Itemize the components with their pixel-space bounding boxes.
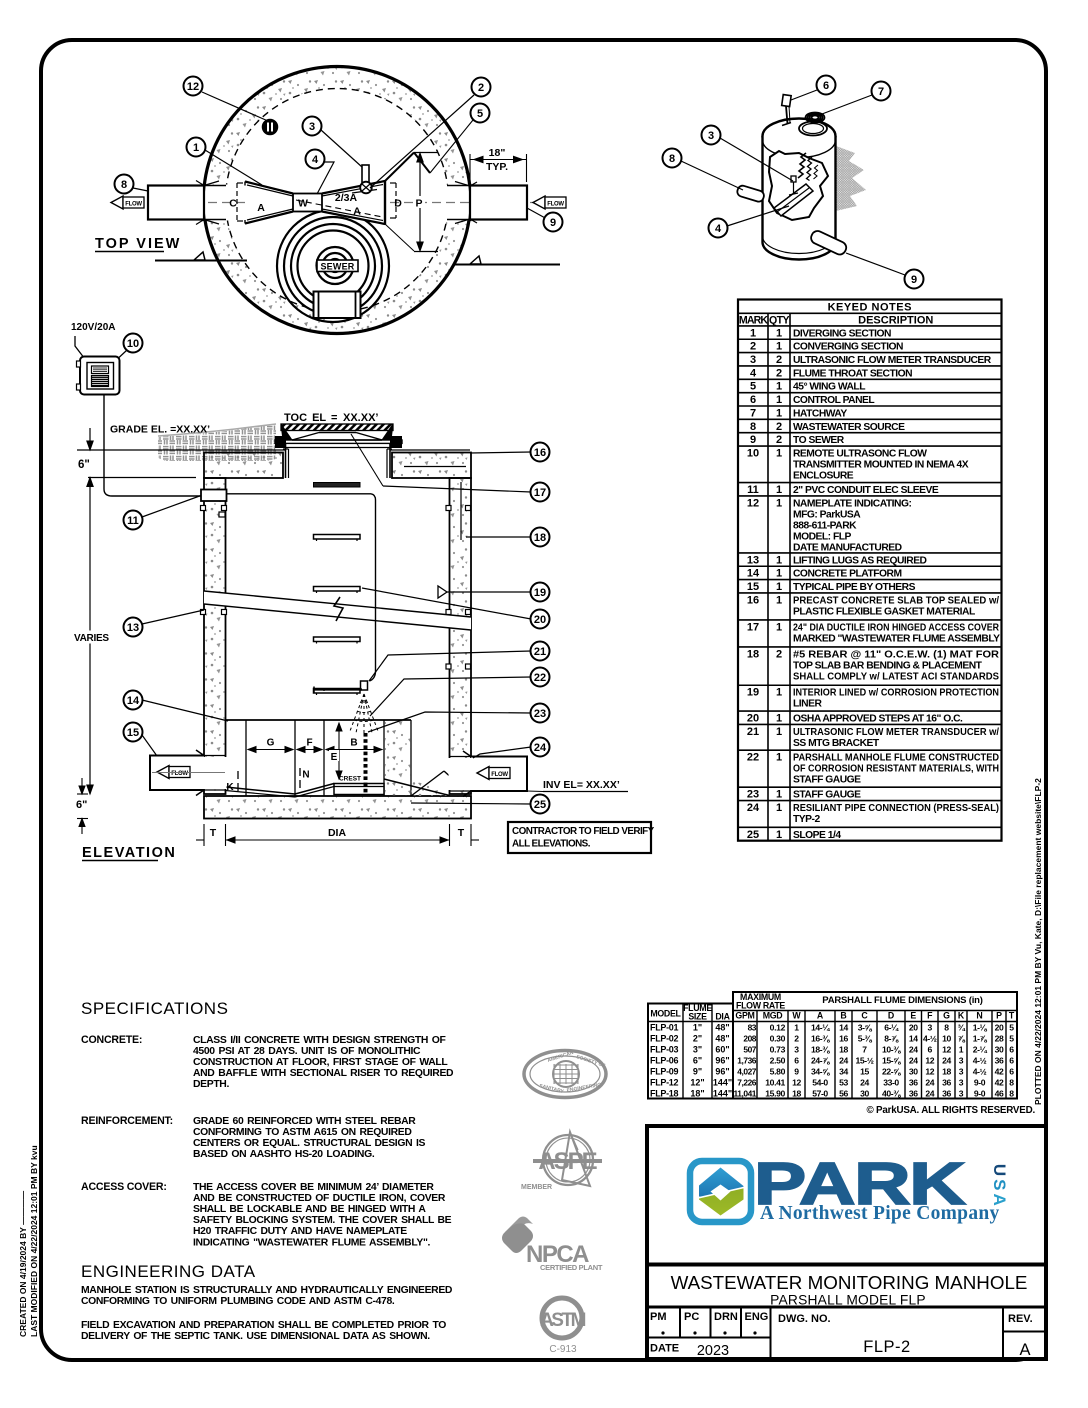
svg-text:6: 6: [794, 1056, 799, 1066]
svg-text:6: 6: [823, 80, 829, 92]
svg-text:2: 2: [794, 1034, 799, 1044]
svg-text:8: 8: [121, 179, 127, 191]
svg-text:14: 14: [747, 568, 760, 580]
svg-text:INDICATING "WASTEWATER FLUME A: INDICATING "WASTEWATER FLUME ASSEMBLY".: [193, 1237, 431, 1248]
svg-text:3: 3: [750, 354, 756, 366]
svg-text:3: 3: [959, 1078, 964, 1088]
svg-text:57-0: 57-0: [812, 1089, 828, 1099]
svg-text:CONCRETE:: CONCRETE:: [81, 1034, 142, 1046]
svg-text:14: 14: [909, 1034, 918, 1044]
svg-text:7: 7: [878, 86, 884, 98]
svg-text:ELEVATION: ELEVATION: [82, 845, 176, 861]
svg-text:1: 1: [776, 341, 782, 353]
svg-text:TOP VIEW: TOP VIEW: [95, 236, 181, 252]
svg-text:LAST MODIFIED ON 4/22/2024 12:: LAST MODIFIED ON 4/22/2024 12:01 PM BY k…: [29, 1145, 39, 1337]
svg-text:ULTRASONIC FLOW METER TRANSDUC: ULTRASONIC FLOW METER TRANSDUCER: [793, 355, 992, 366]
svg-text:CONFORMING TO ASTM A615 ON REQ: CONFORMING TO ASTM A615 ON REQUIRED: [193, 1127, 412, 1138]
svg-text:FIELD EXCAVATION AND PREPARATI: FIELD EXCAVATION AND PREPARATION SHALL B…: [81, 1320, 446, 1331]
svg-text:KEYED NOTES: KEYED NOTES: [828, 302, 912, 314]
svg-text:8: 8: [750, 421, 756, 433]
svg-text:1: 1: [776, 381, 782, 393]
svg-text:GPM: GPM: [735, 1011, 754, 1021]
svg-text:FLUME THROAT SECTION: FLUME THROAT SECTION: [793, 368, 912, 379]
svg-text:18: 18: [534, 532, 546, 544]
svg-text:DATE MANUFACTURED: DATE MANUFACTURED: [793, 542, 902, 553]
svg-text:1: 1: [776, 484, 782, 496]
svg-text:13: 13: [127, 622, 139, 634]
svg-text:FLP-09: FLP-09: [650, 1067, 679, 1077]
svg-text:FLOW: FLOW: [491, 772, 508, 778]
svg-text:42: 42: [995, 1078, 1004, 1088]
svg-text:3: 3: [309, 121, 315, 133]
svg-text:19: 19: [747, 687, 759, 699]
svg-text:30: 30: [860, 1089, 869, 1099]
svg-text:#5 REBAR @ 11" O.C.E.W. (1) MA: #5 REBAR @ 11" O.C.E.W. (1) MAT FOR: [793, 649, 1000, 660]
svg-text:14: 14: [127, 695, 140, 707]
svg-text:24: 24: [909, 1056, 918, 1066]
svg-text:A: A: [1019, 1341, 1030, 1359]
svg-text:24" DIA DUCTILE IRON HINGED AC: 24" DIA DUCTILE IRON HINGED ACCESS COVER: [793, 622, 999, 633]
svg-text:2: 2: [776, 434, 782, 446]
svg-text:CENTERS OR EQUAL. STRUCTURAL D: CENTERS OR EQUAL. STRUCTURAL DESIGN IS: [193, 1138, 426, 1149]
svg-text:SAFETY BLOCKING SYSTEM. THE CO: SAFETY BLOCKING SYSTEM. THE COVER SHALL …: [193, 1215, 452, 1226]
svg-text:507: 507: [743, 1045, 756, 1055]
svg-text:CONCRETE PLATFORM: CONCRETE PLATFORM: [793, 569, 902, 580]
svg-text:CREST: CREST: [339, 776, 361, 783]
svg-text:12: 12: [747, 497, 759, 509]
svg-text:PM: PM: [650, 1311, 667, 1323]
svg-text:40-⅜: 40-⅜: [882, 1089, 901, 1099]
svg-text:OF CORROSION RESISTANT MATERIA: OF CORROSION RESISTANT MATERIALS, WITH: [793, 764, 999, 775]
svg-text:12: 12: [187, 81, 199, 93]
svg-text:1: 1: [776, 581, 782, 593]
svg-text:5: 5: [477, 108, 483, 120]
svg-text:GRADE EL. =XX.XX’: GRADE EL. =XX.XX’: [110, 424, 210, 436]
svg-text:HATCHWAY: HATCHWAY: [793, 408, 847, 419]
svg-text:LIFTING LUGS AS REQUIRED: LIFTING LUGS AS REQUIRED: [793, 555, 927, 566]
svg-text:16: 16: [747, 594, 759, 606]
svg-text:1: 1: [776, 829, 782, 841]
svg-text:120V/20A: 120V/20A: [71, 322, 115, 333]
svg-text:SHALL BE LOCKABLE AND BE HINGE: SHALL BE LOCKABLE AND BE HINGED WITH A: [193, 1204, 426, 1215]
svg-text:FLOW: FLOW: [125, 202, 142, 208]
svg-text:CONTROL PANEL: CONTROL PANEL: [793, 395, 874, 406]
svg-text:SPECIFICATIONS: SPECIFICATIONS: [81, 999, 228, 1018]
svg-text:25: 25: [534, 799, 546, 811]
svg-text:WASTEWATER MONITORING MANHOL: WASTEWATER MONITORING MANHOLE: [671, 1272, 1028, 1293]
svg-text:MFG: ParkUSA: MFG: ParkUSA: [793, 509, 861, 520]
svg-text:DWG. NO.: DWG. NO.: [778, 1313, 831, 1325]
svg-text:E: E: [331, 752, 338, 763]
svg-text:34: 34: [839, 1067, 848, 1077]
svg-text:ACCESS COVER:: ACCESS COVER:: [81, 1181, 167, 1193]
svg-text:16: 16: [534, 447, 546, 459]
svg-text:45° WING WALL: 45° WING WALL: [793, 382, 865, 393]
svg-text:5: 5: [750, 381, 756, 393]
svg-text:1: 1: [776, 447, 782, 459]
svg-text:A Northwest Pipe Company: A Northwest Pipe Company: [760, 1203, 1000, 1224]
svg-text:17: 17: [534, 487, 546, 499]
svg-text:9: 9: [750, 434, 756, 446]
svg-text:PRECAST CONCRETE SLAB TOP SEAL: PRECAST CONCRETE SLAB TOP SEALED w/: [793, 595, 999, 606]
svg-text:6-¼: 6-¼: [884, 1023, 899, 1033]
svg-text:1: 1: [776, 789, 782, 801]
svg-text:MARK: MARK: [739, 315, 768, 327]
svg-text:3: 3: [794, 1045, 799, 1055]
svg-text:11: 11: [747, 484, 759, 496]
svg-text:LINER: LINER: [793, 699, 822, 710]
svg-text:2023: 2023: [697, 1343, 729, 1359]
svg-text:7,226: 7,226: [737, 1078, 757, 1088]
svg-text:TOP SLAB BAR BENDING & PLACEME: TOP SLAB BAR BENDING & PLACEMENT: [793, 660, 983, 671]
svg-text:14: 14: [839, 1023, 848, 1033]
svg-text:H20 TRAFFIC DUTY AND HAVE NAME: H20 TRAFFIC DUTY AND HAVE NAMEPLATE: [193, 1226, 407, 1237]
svg-text:SIZE: SIZE: [688, 1012, 707, 1022]
svg-text:19: 19: [534, 587, 546, 599]
svg-text:DIVERGING SECTION: DIVERGING SECTION: [793, 328, 891, 339]
svg-text:B: B: [840, 1011, 846, 1021]
svg-text:9-0: 9-0: [974, 1089, 986, 1099]
svg-text:3": 3": [693, 1045, 702, 1055]
svg-text:24: 24: [942, 1056, 951, 1066]
svg-text:14-¼: 14-¼: [811, 1023, 830, 1033]
svg-text:CONTRACTOR TO FIELD VERIFY: CONTRACTOR TO FIELD VERIFY: [512, 826, 655, 837]
svg-text:2" PVC CONDUIT ELEC SLEEVE: 2" PVC CONDUIT ELEC SLEEVE: [793, 485, 939, 496]
svg-text:18": 18": [690, 1089, 704, 1099]
svg-text:53: 53: [839, 1078, 848, 1088]
svg-text:1: 1: [776, 802, 782, 814]
svg-text:1: 1: [776, 726, 782, 738]
svg-text:1-⅛: 1-⅛: [973, 1023, 988, 1033]
svg-text:3: 3: [928, 1023, 933, 1033]
svg-text:24-⅞: 24-⅞: [811, 1056, 830, 1066]
svg-text:12: 12: [942, 1045, 951, 1055]
svg-text:144": 144": [713, 1089, 732, 1099]
svg-text:0.12: 0.12: [770, 1023, 786, 1033]
svg-text:83: 83: [748, 1023, 757, 1033]
svg-text:2-¼: 2-¼: [973, 1045, 988, 1055]
svg-text:FLP-06: FLP-06: [650, 1056, 679, 1066]
svg-text:20: 20: [534, 614, 546, 626]
svg-text:SHALL COMPLY w/ LATEST ACI STA: SHALL COMPLY w/ LATEST ACI STANDARDS: [793, 671, 999, 682]
svg-text:144": 144": [713, 1078, 732, 1088]
svg-text:23: 23: [747, 789, 759, 801]
svg-text:15.90: 15.90: [765, 1089, 785, 1099]
svg-text:1: 1: [776, 394, 782, 406]
svg-text:3: 3: [959, 1056, 964, 1066]
svg-text:A: A: [257, 202, 265, 214]
svg-text:1": 1": [693, 1023, 702, 1033]
svg-text:FLP-18: FLP-18: [650, 1089, 679, 1099]
svg-text:DEPTH.: DEPTH.: [193, 1079, 229, 1090]
svg-text:15-⅝: 15-⅝: [882, 1056, 901, 1066]
svg-text:96": 96": [715, 1067, 729, 1077]
svg-text:C: C: [861, 1011, 868, 1021]
svg-text:C-913: C-913: [549, 1344, 577, 1355]
svg-text:1: 1: [776, 327, 782, 339]
svg-text:STAFF GAUGE: STAFF GAUGE: [793, 775, 861, 786]
svg-text:1: 1: [776, 752, 782, 764]
svg-text:11,041: 11,041: [734, 1089, 757, 1099]
svg-text:4,027: 4,027: [737, 1067, 757, 1077]
svg-text:FLP-03: FLP-03: [650, 1045, 679, 1055]
svg-text:15: 15: [127, 727, 139, 739]
svg-text:24: 24: [860, 1078, 869, 1088]
svg-text:1: 1: [776, 594, 782, 606]
svg-text:2: 2: [750, 341, 756, 353]
svg-text:FLP-02: FLP-02: [650, 1034, 679, 1044]
svg-text:ALL ELEVATIONS.: ALL ELEVATIONS.: [512, 839, 591, 850]
svg-text:4: 4: [750, 367, 757, 379]
svg-text:DRN: DRN: [714, 1311, 738, 1323]
svg-text:F: F: [927, 1011, 933, 1021]
svg-text:1: 1: [959, 1045, 964, 1055]
svg-text:22-⅝: 22-⅝: [882, 1067, 901, 1077]
svg-text:PLASTIC FLEXIBLE GASKET MATERI: PLASTIC FLEXIBLE GASKET MATERIAL: [793, 606, 975, 617]
svg-text:6: 6: [1009, 1056, 1014, 1066]
svg-text:DATE: DATE: [650, 1343, 679, 1355]
svg-text:1: 1: [776, 407, 782, 419]
svg-text:9": 9": [693, 1067, 702, 1077]
svg-text:5-⅜: 5-⅜: [858, 1034, 873, 1044]
svg-text:15-½: 15-½: [856, 1056, 874, 1066]
svg-text:3: 3: [959, 1089, 964, 1099]
svg-text:4-½: 4-½: [973, 1067, 987, 1077]
svg-text:TYP.: TYP.: [486, 161, 508, 173]
svg-text:INV EL= XX.XX’: INV EL= XX.XX’: [543, 779, 620, 791]
svg-text:36: 36: [909, 1078, 918, 1088]
svg-text:CONFORMING TO UNIFORM PLUMBING: CONFORMING TO UNIFORM PLUMBING CODE AND …: [81, 1296, 395, 1307]
svg-text:23: 23: [534, 708, 546, 720]
svg-text:2.50: 2.50: [770, 1056, 786, 1066]
svg-text:DESCRIPTION: DESCRIPTION: [858, 315, 933, 327]
svg-text:208: 208: [743, 1034, 756, 1044]
svg-text:24: 24: [747, 802, 760, 814]
svg-text:ULTRASONIC FLOW METER TRANSDUC: ULTRASONIC FLOW METER TRANSDUCER w/: [793, 727, 999, 738]
svg-text:FLOW: FLOW: [547, 202, 564, 208]
svg-text:4: 4: [715, 223, 722, 235]
svg-text:48": 48": [715, 1023, 729, 1033]
svg-text:5: 5: [1009, 1034, 1014, 1044]
svg-text:AND BAFFLE WITH SECTIONAL RISE: AND BAFFLE WITH SECTIONAL RISER TO REQUI…: [193, 1068, 454, 1079]
svg-text:TRANSMITTER MOUNTED IN NEMA 4X: TRANSMITTER MOUNTED IN NEMA 4X: [793, 459, 969, 470]
svg-text:MARKED "WASTEWATER FLUME ASSEM: MARKED "WASTEWATER FLUME ASSEMBLY: [793, 633, 1000, 644]
svg-text:WASTEWATER SOURCE: WASTEWATER SOURCE: [793, 422, 905, 433]
svg-text:16-⅜: 16-⅜: [811, 1034, 830, 1044]
svg-text:18: 18: [747, 648, 759, 660]
svg-text:20: 20: [747, 712, 759, 724]
svg-text:E: E: [910, 1011, 916, 1021]
svg-text:MODEL: MODEL: [650, 1009, 681, 1019]
svg-text:11: 11: [127, 515, 139, 527]
svg-text:CREATED ON 4/19/2024 BY ————: CREATED ON 4/19/2024 BY ————: [18, 1190, 28, 1337]
svg-text:1: 1: [794, 1023, 799, 1033]
svg-text:1: 1: [776, 568, 782, 580]
svg-text:48": 48": [715, 1034, 729, 1044]
svg-text:U: U: [990, 1164, 1009, 1176]
svg-text:42: 42: [995, 1067, 1004, 1077]
svg-text:XX.XX’: XX.XX’: [343, 412, 378, 424]
svg-text:A: A: [353, 206, 361, 218]
svg-text:8: 8: [944, 1023, 949, 1033]
svg-text:VARIES: VARIES: [74, 633, 109, 644]
svg-text:9-0: 9-0: [974, 1078, 986, 1088]
svg-text:INTERIOR LINED w/ CORROSION PR: INTERIOR LINED w/ CORROSION PROTECTION: [793, 688, 999, 699]
svg-text:DIA: DIA: [328, 827, 347, 839]
svg-text:1: 1: [776, 497, 782, 509]
svg-text:2/3A: 2/3A: [335, 192, 358, 204]
svg-text:15: 15: [747, 581, 759, 593]
svg-text:ENCLOSURE: ENCLOSURE: [793, 470, 854, 481]
svg-text:MODEL: FLP: MODEL: FLP: [793, 531, 852, 542]
svg-text:FLP-12: FLP-12: [650, 1078, 679, 1088]
svg-text:24: 24: [534, 742, 547, 754]
svg-text:© ParkUSA. ALL RIGHTS RESER: © ParkUSA. ALL RIGHTS RESERVED.: [866, 1105, 1035, 1116]
svg-text:2: 2: [478, 82, 484, 94]
svg-text:36: 36: [942, 1089, 951, 1099]
svg-text:D: D: [888, 1011, 894, 1021]
svg-text:F: F: [306, 738, 312, 749]
svg-text:0.73: 0.73: [770, 1045, 786, 1055]
svg-text:7: 7: [862, 1045, 867, 1055]
svg-text:SEWER: SEWER: [320, 261, 354, 271]
svg-text:FLP-01: FLP-01: [650, 1023, 679, 1033]
svg-text:W: W: [792, 1011, 801, 1021]
svg-text:P: P: [415, 198, 422, 210]
svg-text:15: 15: [860, 1067, 869, 1077]
svg-text:4500 PSI AT 28 DAYS. UNIT IS O: 4500 PSI AT 28 DAYS. UNIT IS OF MONOLITH…: [193, 1046, 421, 1057]
svg-text:B: B: [350, 738, 357, 749]
svg-text:D: D: [394, 198, 402, 210]
svg-text:18: 18: [839, 1045, 848, 1055]
svg-text:9: 9: [550, 217, 556, 229]
svg-text:REV.: REV.: [1008, 1313, 1033, 1325]
svg-text:12": 12": [690, 1078, 704, 1088]
svg-text:33-0: 33-0: [883, 1078, 899, 1088]
svg-text:54-0: 54-0: [812, 1078, 828, 1088]
svg-text:ENGINEERING DATA: ENGINEERING DATA: [81, 1262, 256, 1281]
svg-text:DIA: DIA: [715, 1012, 730, 1022]
svg-text:6: 6: [1009, 1067, 1014, 1077]
svg-text:ENG: ENG: [745, 1311, 769, 1323]
svg-text:36: 36: [942, 1078, 951, 1088]
svg-text:9: 9: [911, 274, 917, 286]
svg-text:GRADE 60 REINFORCED WITH STEEL: GRADE 60 REINFORCED WITH STEEL REBAR: [193, 1116, 416, 1127]
svg-text:20: 20: [909, 1023, 918, 1033]
svg-text:PARSHALL MANHOLE FLUME CONSTRU: PARSHALL MANHOLE FLUME CONSTRUCTED: [793, 753, 999, 764]
svg-text:2: 2: [776, 648, 782, 660]
svg-text:24: 24: [839, 1056, 848, 1066]
svg-text:BASED ON AASHTO HS-20 LOADING.: BASED ON AASHTO HS-20 LOADING.: [193, 1149, 375, 1160]
svg-text:18: 18: [792, 1089, 801, 1099]
svg-text:4-½: 4-½: [973, 1056, 987, 1066]
svg-text:4: 4: [312, 154, 319, 166]
svg-text:18: 18: [942, 1067, 951, 1077]
svg-text:0.30: 0.30: [770, 1034, 786, 1044]
svg-text:6": 6": [76, 799, 87, 811]
svg-text:17: 17: [747, 621, 759, 633]
svg-text:STAFF GAUGE: STAFF GAUGE: [793, 790, 861, 801]
svg-text:C: C: [229, 198, 237, 210]
svg-text:W: W: [298, 198, 308, 210]
svg-text:24: 24: [925, 1078, 934, 1088]
svg-text:1: 1: [193, 142, 199, 154]
svg-text:2": 2": [693, 1034, 702, 1044]
svg-text:4-½: 4-½: [923, 1034, 937, 1044]
svg-text:25: 25: [747, 829, 759, 841]
svg-text:SS MTG BRACKET: SS MTG BRACKET: [793, 738, 880, 749]
svg-text:K: K: [958, 1011, 965, 1021]
svg-text:3: 3: [959, 1067, 964, 1077]
svg-text:DELIVERY OF THE SEPTIC TANK. U: DELIVERY OF THE SEPTIC TANK. USE DIMENSI…: [81, 1331, 430, 1342]
svg-text:T: T: [210, 827, 217, 839]
svg-text:1-⅞: 1-⅞: [973, 1034, 988, 1044]
svg-text:13: 13: [747, 554, 759, 566]
svg-text:5.80: 5.80: [770, 1067, 786, 1077]
svg-text:1,736: 1,736: [737, 1056, 757, 1066]
svg-text:T: T: [458, 827, 465, 839]
svg-text:MANHOLE STATION IS STRUCTURALL: MANHOLE STATION IS STRUCTURALLY AND HYDR…: [81, 1285, 453, 1296]
svg-text:NAMEPLATE INDICATING:: NAMEPLATE INDICATING:: [793, 498, 911, 509]
svg-text:TYP-2: TYP-2: [793, 814, 820, 825]
svg-text:A: A: [817, 1011, 824, 1021]
svg-text:6": 6": [78, 459, 90, 471]
svg-text:6: 6: [1009, 1045, 1014, 1055]
svg-text:1: 1: [776, 687, 782, 699]
svg-text:G: G: [267, 738, 275, 749]
svg-text:1: 1: [750, 327, 756, 339]
svg-text:10: 10: [747, 447, 759, 459]
svg-text:6": 6": [693, 1056, 702, 1066]
svg-text:TOC EL =: TOC EL =: [284, 412, 337, 424]
svg-text:G: G: [943, 1011, 950, 1021]
svg-text:P: P: [996, 1011, 1002, 1021]
svg-text:S: S: [990, 1179, 1009, 1190]
svg-text:FLP-2: FLP-2: [863, 1338, 910, 1356]
svg-text:PARSHALL MODEL FLP: PARSHALL MODEL FLP: [770, 1293, 926, 1308]
svg-text:36: 36: [995, 1056, 1004, 1066]
svg-text:1: 1: [776, 621, 782, 633]
svg-text:20: 20: [995, 1023, 1004, 1033]
svg-text:10: 10: [942, 1034, 951, 1044]
svg-text:22: 22: [534, 672, 546, 684]
svg-text:12: 12: [792, 1078, 801, 1088]
svg-text:8-⅞: 8-⅞: [884, 1034, 899, 1044]
svg-text:1: 1: [776, 554, 782, 566]
svg-text:9: 9: [794, 1067, 799, 1077]
svg-text:FLOW RATE: FLOW RATE: [736, 1001, 785, 1011]
svg-text:60": 60": [715, 1045, 729, 1055]
svg-text:24: 24: [925, 1089, 934, 1099]
svg-text:PLOTTED ON 4/22/2024 12:01 PM: PLOTTED ON 4/22/2024 12:01 PM BY Vu, Kat…: [1033, 778, 1043, 1105]
svg-text:N: N: [976, 1011, 982, 1021]
svg-text:8: 8: [1009, 1089, 1014, 1099]
svg-text:RESILIANT PIPE CONNECTION (PRE: RESILIANT PIPE CONNECTION (PRESS-SEAL): [793, 803, 999, 814]
svg-text:6: 6: [750, 394, 756, 406]
svg-text:46: 46: [995, 1089, 1004, 1099]
svg-text:THE ACCESS COVER BE MINIMUM 24: THE ACCESS COVER BE MINIMUM 24’ DIAMETER: [193, 1182, 434, 1193]
svg-text:1: 1: [776, 712, 782, 724]
svg-text:7: 7: [750, 407, 756, 419]
svg-text:8: 8: [669, 153, 675, 165]
svg-text:12: 12: [925, 1056, 934, 1066]
svg-text:96": 96": [715, 1056, 729, 1066]
svg-text:10-⅜: 10-⅜: [882, 1045, 901, 1055]
svg-text:18-⅜: 18-⅜: [811, 1045, 830, 1055]
svg-text:AND BE CONSTRUCTED OF DUCTILE: AND BE CONSTRUCTED OF DUCTILE IRON, COVE…: [193, 1193, 446, 1204]
svg-text:12: 12: [925, 1067, 934, 1077]
svg-text:PARSHALL FLUME DIMENSIONS (in): PARSHALL FLUME DIMENSIONS (in): [822, 995, 982, 1006]
